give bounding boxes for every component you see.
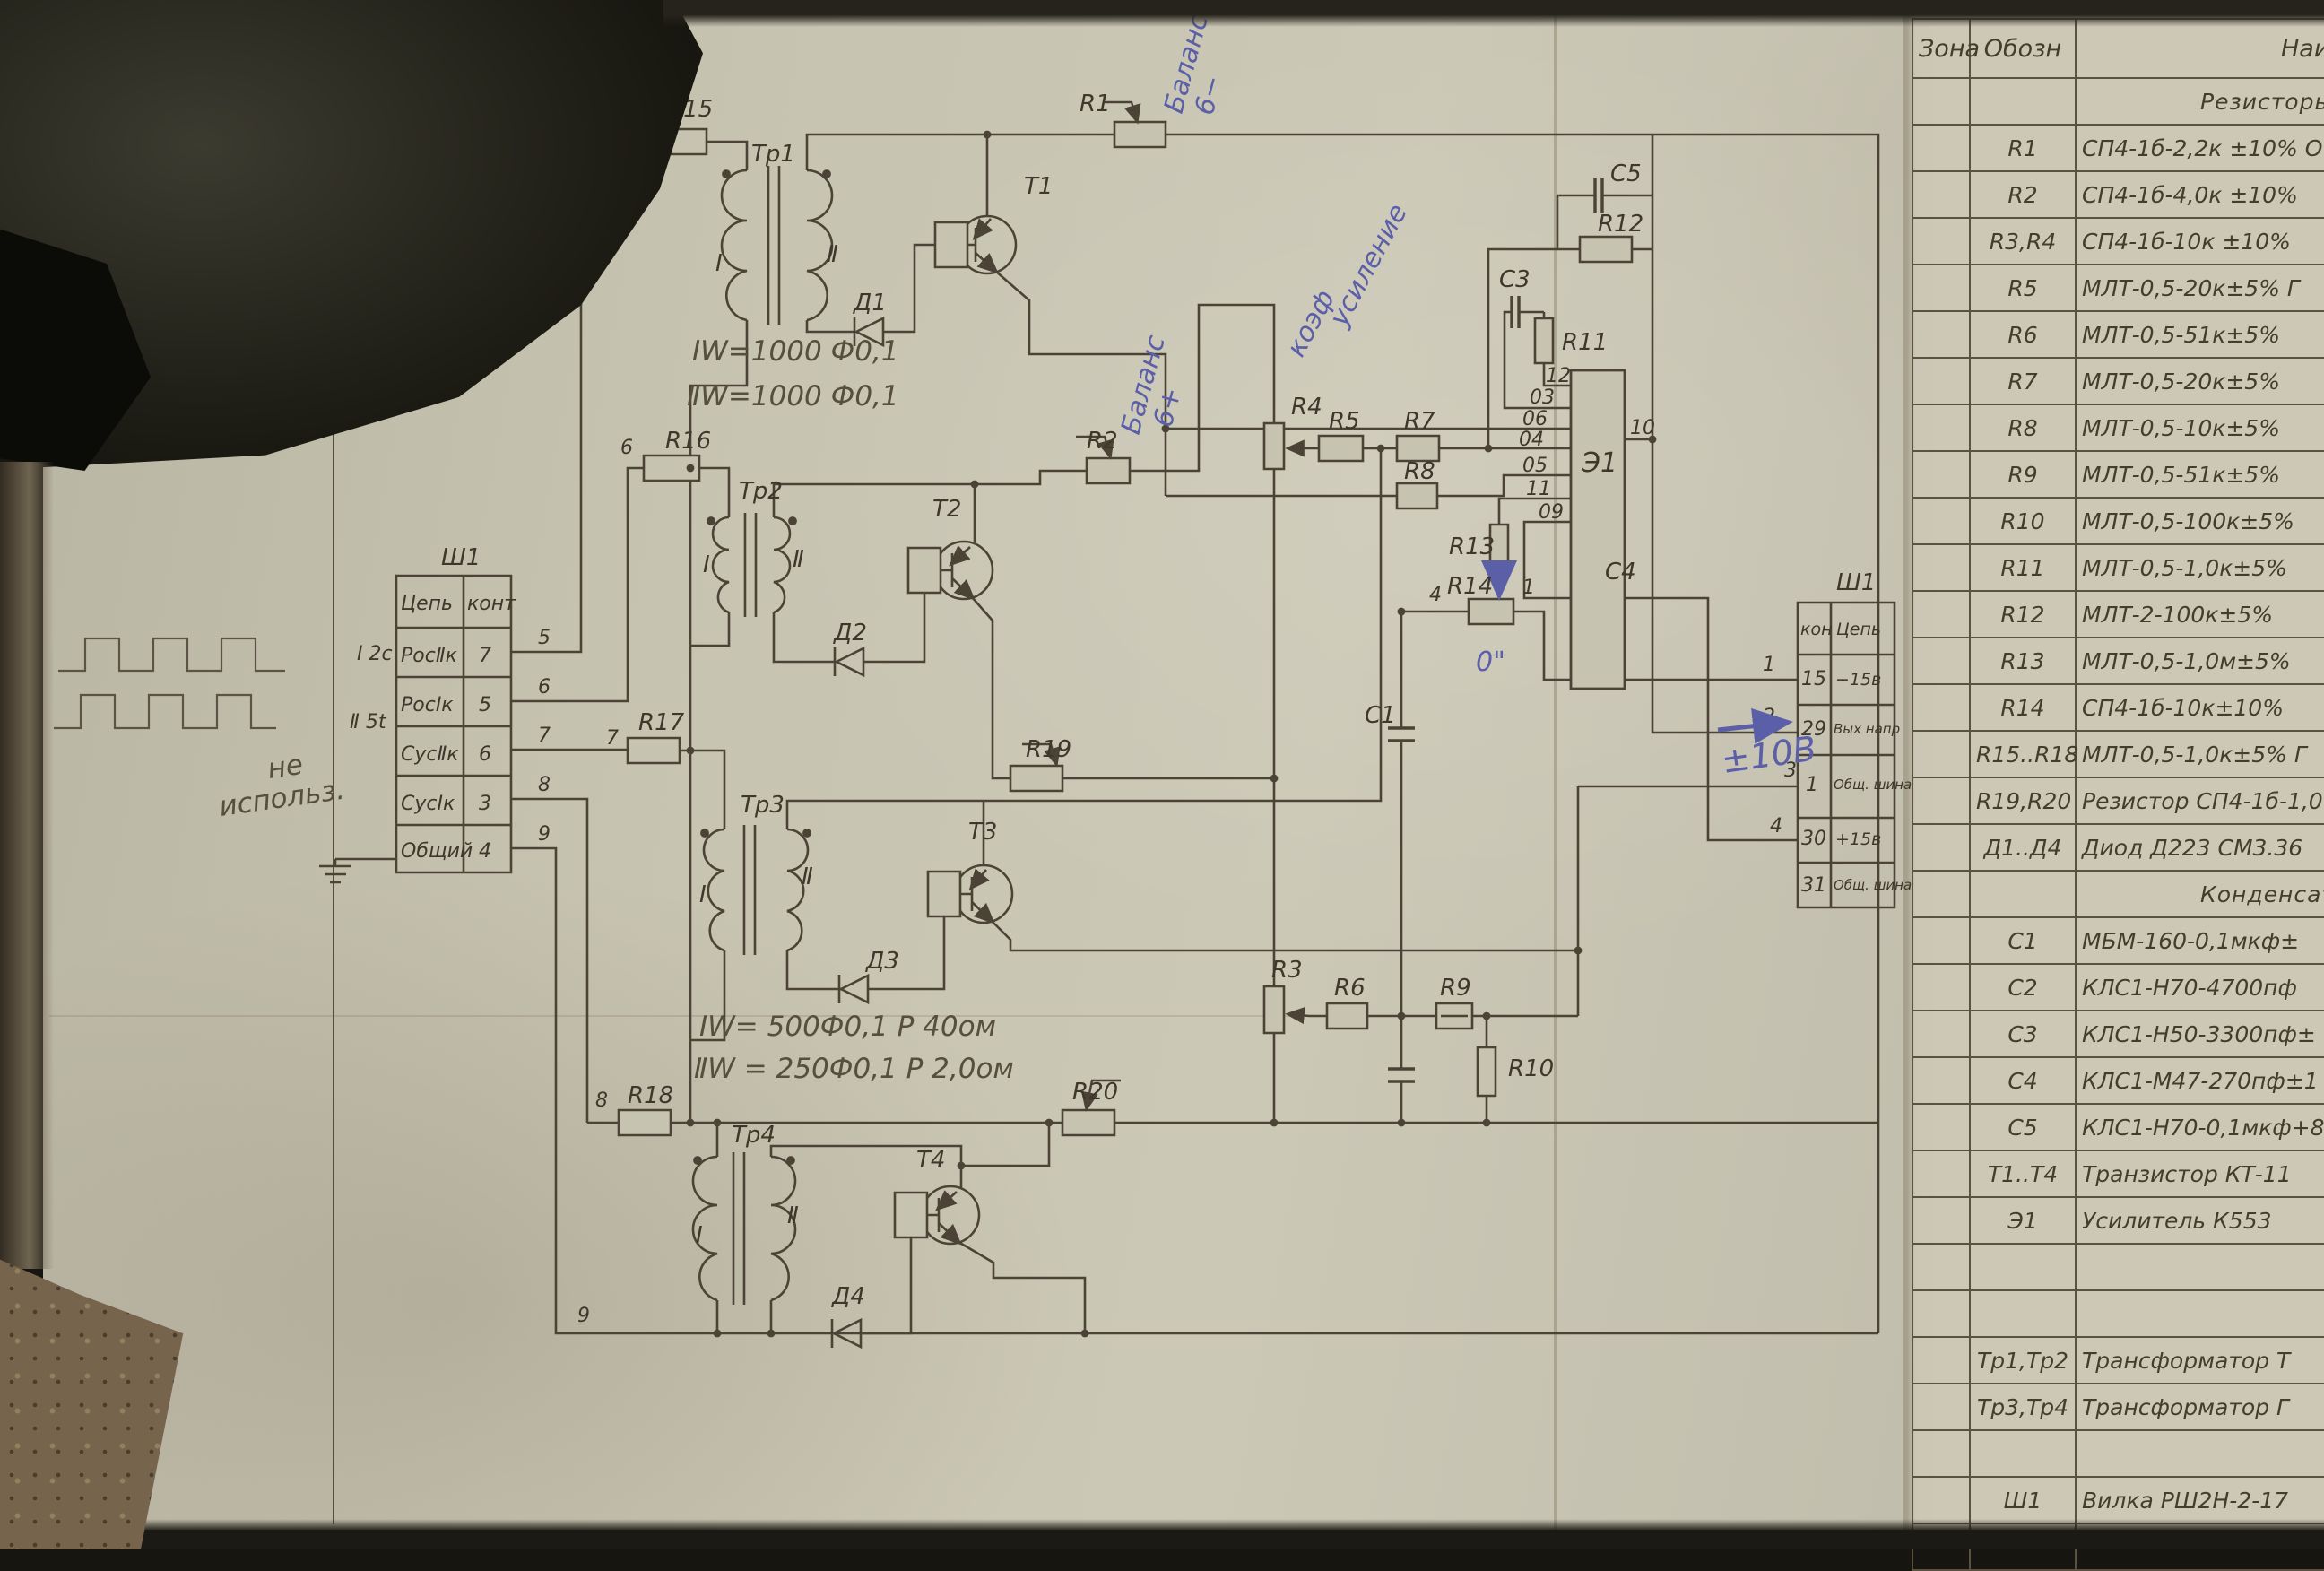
pin-09: 09 (1539, 501, 1564, 524)
square-wave-1 (58, 638, 285, 671)
parts-list: Зона Обозн Наименование Резисторы R1 СП4… (1912, 18, 2324, 1571)
table-row: R5 МЛТ-0,5-20к±5% Г (1912, 265, 2324, 311)
cell-zone (1912, 404, 1970, 451)
col-circuit: Цепь (401, 593, 453, 615)
note-tr1-winding1: ⅠW=1000 Ф0,1 (692, 335, 899, 368)
cell-zone (1912, 1057, 1970, 1104)
cell-zone (1912, 591, 1970, 638)
potentiometer-r1 (1114, 122, 1166, 147)
col-contact: кон (1800, 620, 1833, 639)
table-row: R9 МЛТ-0,5-51к±5% (1912, 451, 2324, 498)
resistor-r18 (619, 1110, 671, 1135)
row-circuit: Вых напр (1834, 721, 1900, 737)
parts-header-row: Зона Обозн Наименование (1912, 19, 2324, 78)
resistor-r17 (628, 738, 680, 763)
cell-ref: R9 (1970, 451, 2076, 498)
cell-ref: R6 (1970, 311, 2076, 358)
row-contact: 5 (479, 694, 491, 716)
table-row: R15..R18 МЛТ-0,5-1,0к±5% Г (1912, 731, 2324, 777)
winding-ii: Ⅱ (802, 864, 813, 890)
row-contact: 15 (1801, 668, 1826, 690)
note-zero: 0" (1476, 647, 1505, 678)
cell-ref: R3,R4 (1970, 218, 2076, 265)
wire-4: 4 (1429, 584, 1442, 606)
row-circuit: Общ. шина (1834, 877, 1912, 893)
cell-zone (1912, 777, 1970, 824)
cell-name: КЛС1-Н70-0,1мкф+8−2 (2076, 1104, 2324, 1150)
capacitor-c5 (1595, 178, 1602, 213)
potentiometer-r14 (1469, 599, 1513, 624)
col-circuit: Цепь (1836, 620, 1881, 639)
cell-zone (1912, 1477, 1970, 1523)
wire-5: 5 (538, 627, 551, 649)
row-contact: 1 (1806, 774, 1818, 796)
connector-left-title: Ш1 (441, 544, 481, 571)
parts-table-body: Резисторы R1 СП4-1б-2,2к ±10% О R2 СП4-1… (1912, 78, 2324, 1570)
label-r6: R6 (1334, 975, 1366, 1002)
table-row: R11 МЛТ-0,5-1,0к±5% (1912, 544, 2324, 591)
cell-name: КЛС1-М47-270пф±1 (2076, 1057, 2324, 1104)
cell-zone (1912, 917, 1970, 964)
cell-ref: R12 (1970, 591, 2076, 638)
label-r7: R7 (1404, 408, 1435, 435)
cell-name (2076, 1244, 2324, 1290)
cell-ref: С2 (1970, 964, 2076, 1011)
cell-zone (1912, 1290, 1970, 1337)
desk-edge-top (663, 0, 2324, 27)
cell-ref: С4 (1970, 1057, 2076, 1104)
cell-name: Трансформатор Г (2076, 1384, 2324, 1430)
cell-zone (1912, 964, 1970, 1011)
cell-zone (1912, 1384, 1970, 1430)
label-d2: Д2 (833, 620, 867, 647)
cell-ref: R8 (1970, 404, 2076, 451)
note-gain-1: коэф (1280, 285, 1341, 362)
cell-ref: Тр1,Тр2 (1970, 1337, 2076, 1384)
label-r12: R12 (1598, 211, 1643, 238)
label-t4: Т4 (916, 1147, 945, 1174)
cell-zone (1912, 1011, 1970, 1057)
potentiometer-r2 (1087, 458, 1130, 483)
cell-ref (1970, 1430, 2076, 1477)
cell-ref: R11 (1970, 544, 2076, 591)
label-r17: R17 (638, 709, 685, 736)
cell-name: МЛТ-0,5-20к±5% (2076, 358, 2324, 404)
table-row (1912, 1430, 2324, 1477)
label-r16: R16 (665, 428, 711, 455)
cell-ref: Э1 (1970, 1197, 2076, 1244)
cell-name: СП4-1б-10к±10% (2076, 684, 2324, 731)
cell-ref: С1 (1970, 917, 2076, 964)
row-contact: 7 (479, 645, 491, 667)
label-t3: Т3 (968, 819, 997, 846)
winding-ii: Ⅱ (793, 546, 804, 573)
cell-zone (1912, 1150, 1970, 1197)
transistor-t1 (935, 216, 1016, 273)
label-r11: R11 (1562, 329, 1608, 356)
note-tr3-winding1: ⅠW= 500Ф0,1 Р 40ом (699, 1011, 996, 1043)
table-row: R3,R4 СП4-1б-10к ±10% (1912, 218, 2324, 265)
row-circuit: Общ. шина (1834, 777, 1912, 793)
amplifier-e1 (1571, 370, 1625, 689)
paper-left-edge-shadow (0, 462, 54, 1269)
table-row: R2 СП4-1б-4,0к ±10% (1912, 171, 2324, 218)
cell-ref: R5 (1970, 265, 2076, 311)
table-row: С2 КЛС1-Н70-4700пф (1912, 964, 2324, 1011)
cell-name (2076, 1430, 2324, 1477)
pin-12: 12 (1546, 365, 1571, 387)
connector-right: Ш1 кон Цепь 15 −15в 29 Вых напр 1 Общ. ш… (1798, 569, 1912, 907)
photo-of-schematic: { "colors":{"ink":"#4a4336","pencil_note… (0, 0, 2324, 1549)
desk-edge-bottom (0, 1519, 2324, 1549)
wiper-arrows (1022, 102, 1499, 1107)
label-r13: R13 (1449, 534, 1495, 560)
cell-zone (1912, 731, 1970, 777)
transistor-t4 (895, 1186, 979, 1244)
cell-zone (1912, 824, 1970, 871)
label-c5: С5 (1610, 161, 1642, 187)
cell-ref (1970, 1290, 2076, 1337)
row-contact: 3 (479, 793, 491, 815)
cell-name (2076, 1290, 2324, 1337)
table-row: Ш1 Вилка РШ2Н-2-17 (1912, 1477, 2324, 1523)
capacitor-c3 (1512, 296, 1519, 328)
diode-d3 (839, 975, 868, 1003)
label-t2: Т2 (932, 496, 961, 523)
table-row: R8 МЛТ-0,5-10к±5% (1912, 404, 2324, 451)
row-contact: 30 (1801, 828, 1826, 850)
cell-ref: R14 (1970, 684, 2076, 731)
cell-ref (1970, 871, 2076, 917)
table-row: Тр1,Тр2 Трансформатор Т (1912, 1337, 2324, 1384)
col-contact: конт (467, 593, 516, 615)
transformer-tr2 (707, 513, 795, 617)
cell-name: СП4-1б-2,2к ±10% О (2076, 125, 2324, 171)
table-row: С4 КЛС1-М47-270пф±1 (1912, 1057, 2324, 1104)
table-row: С5 КЛС1-Н70-0,1мкф+8−2 (1912, 1104, 2324, 1150)
pin-06: 06 (1522, 408, 1548, 430)
potentiometer-r20 (1062, 1110, 1114, 1135)
header-name: Наименование (2076, 19, 2324, 78)
cell-ref: R7 (1970, 358, 2076, 404)
table-row: R10 МЛТ-0,5-100к±5% (1912, 498, 2324, 544)
cell-ref: R15..R18 (1970, 731, 2076, 777)
cell-name: МЛТ-2-100к±5% (2076, 591, 2324, 638)
wire-8: 8 (595, 1089, 608, 1112)
cell-name: Резисторы (2076, 78, 2324, 125)
label-r18: R18 (628, 1082, 673, 1109)
table-row: R12 МЛТ-2-100к±5% (1912, 591, 2324, 638)
label-r2: R2 (1087, 428, 1118, 455)
cell-zone (1912, 871, 1970, 917)
row-circuit: РосⅡк (401, 645, 458, 667)
note-gain-2: усиление (1323, 199, 1414, 333)
winding-i: Ⅰ (703, 551, 710, 578)
note-tr3-winding2: ⅡW = 250Ф0,1 Р 2,0ом (694, 1053, 1014, 1085)
cell-zone (1912, 451, 1970, 498)
cell-name: МЛТ-0,5-100к±5% (2076, 498, 2324, 544)
cell-name: Резистор СП4-1б-1,0 (2076, 777, 2324, 824)
potentiometer-r3 (1264, 986, 1284, 1033)
resistor-r10 (1478, 1047, 1496, 1096)
cell-ref: Д1..Д4 (1970, 824, 2076, 871)
wire-1: 1 (1522, 577, 1535, 599)
cell-name: МЛТ-0,5-1,0к±5% Г (2076, 731, 2324, 777)
label-r1: R1 (1080, 91, 1111, 117)
cell-name: Конденсаторы (2076, 871, 2324, 917)
cell-zone (1912, 358, 1970, 404)
label-r14: R14 (1447, 573, 1493, 600)
cell-ref: R19,R20 (1970, 777, 2076, 824)
cell-zone (1912, 1244, 1970, 1290)
cell-name: МЛТ-0,5-51к±5% (2076, 451, 2324, 498)
potentiometer-r19 (1010, 766, 1062, 791)
resistor-r7 (1397, 436, 1439, 461)
diodes (832, 317, 883, 1348)
note-tr1-winding2: ⅡW=1000 Ф0,1 (687, 380, 899, 412)
square-wave-2 (54, 695, 276, 728)
label-tr3: Тр3 (741, 792, 785, 819)
label-r9: R9 (1440, 975, 1471, 1002)
table-row: Резисторы (1912, 78, 2324, 125)
resistor-r6 (1327, 1003, 1367, 1029)
label-r4: R4 (1291, 394, 1322, 421)
cell-zone (1912, 311, 1970, 358)
cell-zone (1912, 218, 1970, 265)
pin-11: 11 (1526, 478, 1551, 500)
table-row: Т1..Т4 Транзистор КТ-11 (1912, 1150, 2324, 1197)
cell-ref: Т1..Т4 (1970, 1150, 2076, 1197)
winding-ii: Ⅱ (787, 1202, 799, 1229)
table-row: R1 СП4-1б-2,2к ±10% О (1912, 125, 2324, 171)
connector-right-title: Ш1 (1836, 569, 1876, 596)
cell-zone (1912, 78, 1970, 125)
row-contact: 31 (1801, 874, 1826, 897)
resistor-r8 (1397, 483, 1437, 508)
potentiometer-r4 (1264, 423, 1284, 469)
transistor-t3 (928, 865, 1012, 923)
winding-ii: Ⅱ (827, 241, 838, 268)
resistor-r11 (1535, 318, 1553, 363)
table-row: Конденсаторы (1912, 871, 2324, 917)
resistor-r5 (1319, 436, 1363, 461)
cell-name: МЛТ-0,5-20к±5% Г (2076, 265, 2324, 311)
transistor-t2 (908, 542, 993, 599)
note-output-voltage: ±10В (1719, 729, 1818, 781)
table-row: С1 МБМ-160-0,1мкф± (1912, 917, 2324, 964)
row-circuit: +15в (1835, 829, 1881, 849)
transformer-tr4 (693, 1152, 795, 1305)
table-row (1912, 1244, 2324, 1290)
parts-table: Зона Обозн Наименование Резисторы R1 СП4… (1912, 18, 2324, 1571)
cell-name: КЛС1-Н70-4700пф (2076, 964, 2324, 1011)
table-row: Э1 Усилитель К553 (1912, 1197, 2324, 1244)
cell-ref: R2 (1970, 171, 2076, 218)
cell-name: Усилитель К553 (2076, 1197, 2324, 1244)
header-ref: Обозн (1970, 19, 2076, 78)
cell-name: СП4-1б-10к ±10% (2076, 218, 2324, 265)
cell-ref: Тр3,Тр4 (1970, 1384, 2076, 1430)
label-r3: R3 (1271, 957, 1303, 984)
cell-zone (1912, 1104, 1970, 1150)
cell-name: МЛТ-0,5-51к±5% (2076, 311, 2324, 358)
cell-ref: R10 (1970, 498, 2076, 544)
wire-6: 6 (620, 437, 633, 459)
cell-zone (1912, 544, 1970, 591)
input-waveforms (54, 638, 285, 728)
wire-8: 8 (538, 774, 551, 796)
cell-name: Вилка РШ2Н-2-17 (2076, 1477, 2324, 1523)
table-row: R7 МЛТ-0,5-20к±5% (1912, 358, 2324, 404)
wire-4: 4 (1770, 815, 1782, 838)
cell-name: МЛТ-0,5-1,0м±5% (2076, 638, 2324, 684)
cell-name: Транзистор КТ-11 (2076, 1150, 2324, 1197)
cell-zone (1912, 265, 1970, 311)
resistor-r12 (1580, 237, 1632, 262)
label-e1: Э1 (1581, 447, 1617, 479)
cell-zone (1912, 684, 1970, 731)
row-circuit: Общий (401, 840, 473, 863)
cell-ref (1970, 1244, 2076, 1290)
table-row: R14 СП4-1б-10к±10% (1912, 684, 2324, 731)
table-row: R6 МЛТ-0,5-51к±5% (1912, 311, 2324, 358)
resistors (619, 122, 1632, 1135)
cell-ref: R13 (1970, 638, 2076, 684)
cell-zone (1912, 125, 1970, 171)
label-tr4: Тр4 (732, 1122, 776, 1149)
table-row: С3 КЛС1-Н50-3300пф± (1912, 1011, 2324, 1057)
connector-left: Ш1 Цепь конт РосⅡк 7 РосⅠк 5 СусⅡк 6 Сус… (396, 544, 516, 872)
cell-zone (1912, 1337, 1970, 1384)
diode-d2 (835, 647, 863, 676)
wire-6: 6 (538, 676, 551, 699)
wire-9: 9 (577, 1305, 590, 1327)
cell-zone (1912, 1197, 1970, 1244)
cell-ref: Ш1 (1970, 1477, 2076, 1523)
header-zone: Зона (1912, 19, 1970, 78)
row-circuit: −15в (1835, 670, 1881, 690)
row-contact: 4 (479, 840, 491, 863)
label-d3: Д3 (865, 948, 899, 975)
label-r20: R20 (1072, 1079, 1118, 1106)
wire-9: 9 (538, 823, 551, 846)
label-r19: R19 (1026, 736, 1071, 763)
row-circuit: СусⅠк (401, 793, 455, 815)
cell-zone (1912, 171, 1970, 218)
cell-zone (1912, 638, 1970, 684)
label-c3: С3 (1499, 266, 1531, 293)
winding-i: Ⅰ (696, 1222, 703, 1249)
cell-zone (1912, 498, 1970, 544)
pin-03: 03 (1530, 386, 1555, 409)
winding-i: Ⅰ (715, 250, 723, 277)
row-circuit: РосⅠк (401, 694, 454, 716)
table-row: R19,R20 Резистор СП4-1б-1,0 (1912, 777, 2324, 824)
row-contact: 6 (479, 743, 491, 766)
label-r8: R8 (1404, 458, 1435, 485)
wire-7: 7 (538, 725, 551, 747)
cell-name: Диод Д223 СМ3.36 (2076, 824, 2324, 871)
pin-10: 10 (1630, 417, 1655, 439)
label-d1: Д1 (853, 290, 887, 317)
table-row (1912, 1290, 2324, 1337)
cell-zone (1912, 1430, 1970, 1477)
label-wave-2: Ⅱ 5t (350, 711, 387, 733)
row-circuit: СусⅡк (401, 743, 459, 766)
pin-05: 05 (1522, 455, 1548, 477)
capacitor-c1 (1388, 728, 1415, 741)
label-wave-1: Ⅰ 2с (357, 643, 393, 665)
cell-name: МЛТ-0,5-1,0к±5% (2076, 544, 2324, 591)
label-r10: R10 (1508, 1055, 1554, 1082)
table-row: Д1..Д4 Диод Д223 СМ3.36 (1912, 824, 2324, 871)
label-t1: Т1 (1024, 173, 1053, 200)
cell-name: МБМ-160-0,1мкф± (2076, 917, 2324, 964)
label-tr1: Тр1 (751, 141, 795, 168)
table-row: R13 МЛТ-0,5-1,0м±5% (1912, 638, 2324, 684)
ground-symbol (319, 859, 396, 882)
winding-i: Ⅰ (699, 881, 707, 908)
cell-name: Трансформатор Т (2076, 1337, 2324, 1384)
capacitor-c2 (1388, 1069, 1415, 1081)
label-c4: С4 (1605, 559, 1636, 586)
cell-ref: R1 (1970, 125, 2076, 171)
cell-ref: С5 (1970, 1104, 2076, 1150)
cell-name: МЛТ-0,5-10к±5% (2076, 404, 2324, 451)
label-c1: С1 (1365, 702, 1396, 729)
cell-ref (1970, 78, 2076, 125)
cell-name: СП4-1б-4,0к ±10% (2076, 171, 2324, 218)
cell-name: КЛС1-Н50-3300пф± (2076, 1011, 2324, 1057)
transformer-tr3 (701, 825, 810, 955)
transformer-tr1 (722, 166, 832, 325)
table-row: Тр3,Тр4 Трансформатор Г (1912, 1384, 2324, 1430)
label-tr2: Тр2 (739, 478, 783, 505)
transistors (895, 216, 1016, 1244)
wire-7: 7 (606, 727, 619, 750)
label-r5: R5 (1329, 408, 1360, 435)
pin-04: 04 (1519, 429, 1544, 451)
cell-ref: С3 (1970, 1011, 2076, 1057)
label-d4: Д4 (831, 1283, 865, 1310)
wire-1: 1 (1763, 654, 1775, 676)
